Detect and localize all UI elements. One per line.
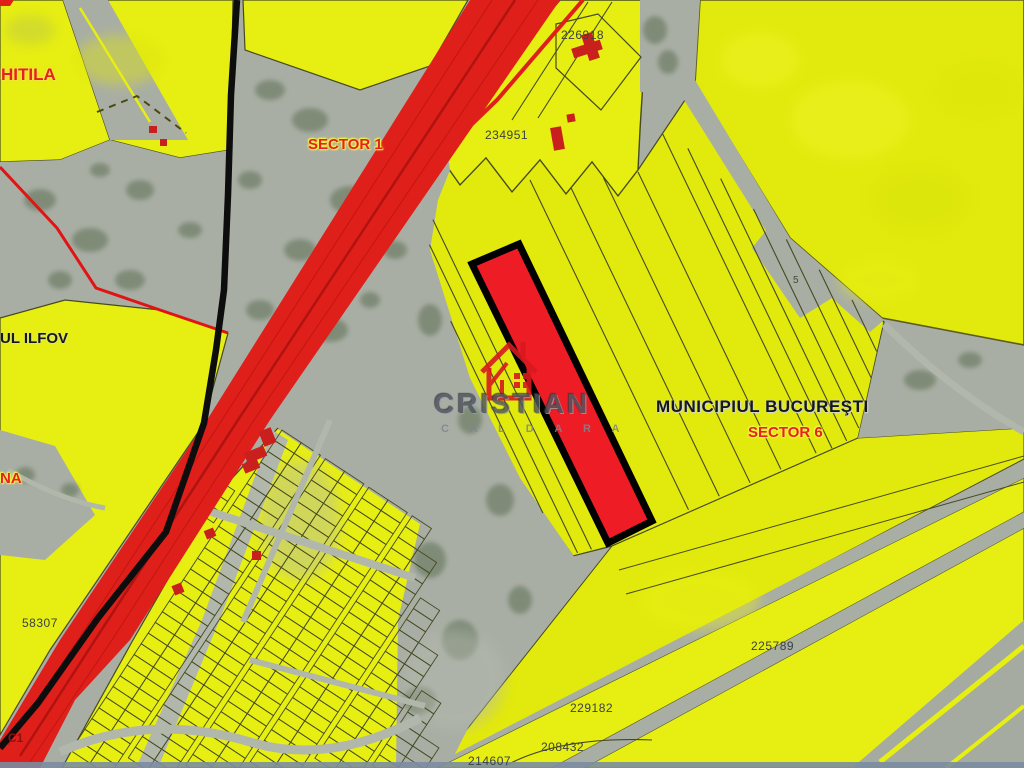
map-canvas[interactable]: HITILASECTOR 1UL ILFOVNAMUNICIPIUL BUCUR… xyxy=(0,0,1024,768)
cadastral-map xyxy=(0,0,1024,768)
water-strip xyxy=(0,762,1024,768)
